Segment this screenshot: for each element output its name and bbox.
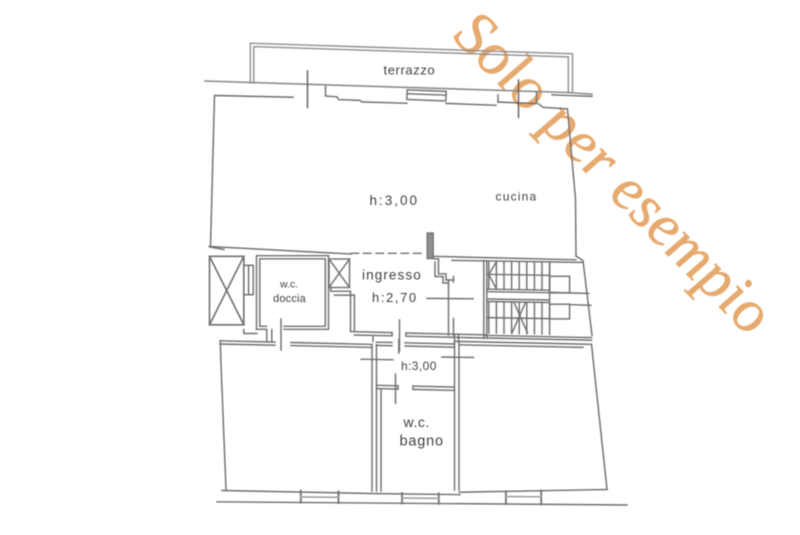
svg-text:h:3,00: h:3,00 xyxy=(401,359,437,373)
svg-text:w.c.: w.c. xyxy=(279,278,298,290)
svg-text:w.c.: w.c. xyxy=(403,414,431,430)
svg-text:cucina: cucina xyxy=(496,190,538,204)
svg-text:ingresso: ingresso xyxy=(362,267,422,282)
svg-text:h:2,70: h:2,70 xyxy=(372,290,418,305)
svg-text:Solo per esempio: Solo per esempio xyxy=(443,0,784,349)
svg-text:doccia: doccia xyxy=(273,293,307,305)
svg-text:h:3,00: h:3,00 xyxy=(370,193,420,208)
svg-text:bagno: bagno xyxy=(400,434,444,450)
svg-text:terrazzo: terrazzo xyxy=(384,63,436,78)
